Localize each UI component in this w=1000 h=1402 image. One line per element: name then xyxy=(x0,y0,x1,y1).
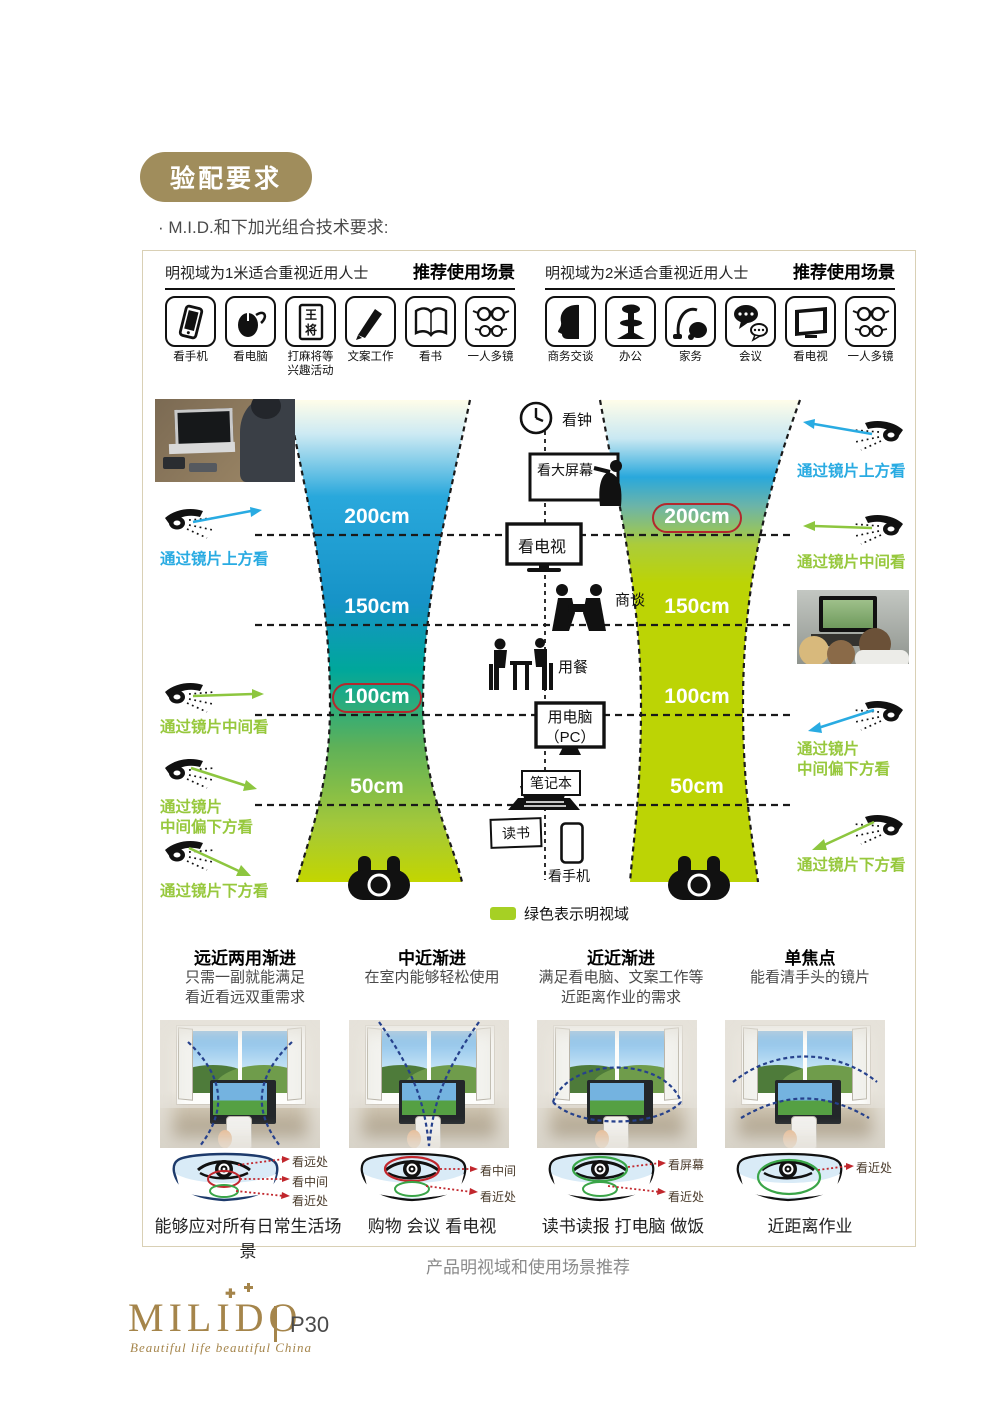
diagram-caption: 产品明视域和使用场景推荐 xyxy=(142,1253,914,1278)
catalog-page: 验配要求 · M.I.D.和下加光组合技术要求: 明视域为1米适合重视近用人士 … xyxy=(0,0,1000,1402)
scene-icons-left: 看手机 看电脑 王 将 打麻将等兴趣活动 文案工作 看书 xyxy=(165,296,517,379)
photo-laptop-user xyxy=(155,399,295,482)
scene-business-talk: 商务交谈 xyxy=(545,296,596,365)
legend-clear-zone: 绿色表示明视域 xyxy=(490,903,629,924)
lens-diagram-3 xyxy=(544,1148,674,1206)
scene-phone: 看手机 xyxy=(165,296,216,379)
window-scene-2 xyxy=(349,1020,509,1148)
lens4-title: 单焦点 xyxy=(715,944,905,969)
activity-talk-label: 商谈 xyxy=(615,589,645,610)
lens3-title: 近近渐进 xyxy=(526,944,716,969)
clear-zone-overlay-arc xyxy=(725,1020,885,1148)
eye-direction-icon xyxy=(800,698,905,743)
eye-direction-icon xyxy=(163,756,265,800)
glasses-icon xyxy=(851,302,891,342)
lens4-caption: 近距离作业 xyxy=(715,1212,905,1237)
distance-left-50: 50cm xyxy=(322,775,432,799)
distance-right-50: 50cm xyxy=(642,775,752,799)
lens2-label-near: 看近处 xyxy=(480,1188,516,1205)
lens3-desc: 满足看电脑、文案工作等近距离作业的需求 xyxy=(526,968,716,1009)
annotation-right-middle: 通过镜片中间看 xyxy=(797,553,906,573)
annotation-right-top: 通过镜片上方看 xyxy=(797,462,906,482)
scene-meeting: 会议 xyxy=(725,296,776,365)
lens2-caption: 购物 会议 看电视 xyxy=(337,1212,527,1237)
panel-right-scenes-title: 推荐使用场景 xyxy=(793,258,895,283)
lens2-desc: 在室内能够轻松使用 xyxy=(337,968,527,988)
activity-read-label: 读书 xyxy=(489,817,542,849)
scene-multi-glasses: 一人多镜 xyxy=(465,296,516,379)
scene-reading: 看书 xyxy=(405,296,456,379)
lens4-desc: 能看清手头的镜片 xyxy=(715,968,905,988)
eye-direction-icon xyxy=(163,838,265,882)
svg-text:将: 将 xyxy=(304,322,316,337)
scene-office: 办公 xyxy=(605,296,656,365)
annotation-left-middle: 通过镜片中间看 xyxy=(160,718,269,738)
brand-tagline: Beautiful life beautiful China xyxy=(130,1340,312,1356)
person-topview-icon xyxy=(348,856,410,902)
lens3-label-screen: 看屏幕 xyxy=(668,1156,704,1173)
annotation-left-midlow: 通过镜片中间偏下方看 xyxy=(160,798,253,838)
distance-right-200-circled: 200cm xyxy=(642,503,752,533)
phone-activity-icon xyxy=(560,822,584,864)
clock-icon xyxy=(518,400,554,436)
activity-dine-label: 用餐 xyxy=(558,656,588,677)
clear-zone-overlay-arch xyxy=(537,1020,697,1148)
pen-icon xyxy=(351,302,391,342)
lens2-title: 中近渐进 xyxy=(337,944,527,969)
lens1-label-far: 看远处 xyxy=(292,1153,328,1170)
eye-direction-icon xyxy=(163,506,265,548)
distance-left-200: 200cm xyxy=(322,505,432,529)
lens1-label-mid: 看中间 xyxy=(292,1173,328,1190)
clear-zone-overlay-hourglass xyxy=(160,1020,320,1148)
mouse-icon xyxy=(231,302,271,342)
handshake-icon xyxy=(548,583,610,631)
glasses-icon xyxy=(471,302,511,342)
phone-icon xyxy=(171,302,211,342)
lens3-caption: 读书读报 打电脑 做饭 xyxy=(523,1212,723,1237)
lens4-label-near: 看近处 xyxy=(856,1159,892,1176)
lens3-label-near: 看近处 xyxy=(668,1188,704,1205)
activity-tv-label: 看电视 xyxy=(518,533,566,557)
chat-icon xyxy=(731,302,771,342)
book-icon xyxy=(411,302,451,342)
eye-direction-icon xyxy=(800,418,905,463)
vacuum-icon xyxy=(671,302,711,342)
footer-divider xyxy=(274,1306,277,1342)
activity-bigscreen-label: 看大屏幕 xyxy=(537,460,593,480)
scene-mahjong: 王 将 打麻将等兴趣活动 xyxy=(285,296,336,379)
activity-laptop-label: 笔记本 xyxy=(521,770,581,796)
lens2-label-mid: 看中间 xyxy=(480,1162,516,1179)
profile-icon xyxy=(551,302,591,342)
eye-direction-icon xyxy=(800,512,905,554)
legend-swatch xyxy=(490,907,516,920)
eye-direction-icon xyxy=(800,812,905,857)
annotation-right-bottom: 通过镜片下方看 xyxy=(797,856,906,876)
lens-diagram-4 xyxy=(732,1148,862,1206)
panel-left-title: 明视域为1米适合重视近用人士 xyxy=(165,262,368,283)
distance-left-100-circled: 100cm xyxy=(322,683,432,713)
panel-right-title: 明视域为2米适合重视近用人士 xyxy=(545,262,748,283)
window-scene-4 xyxy=(725,1020,885,1148)
photo-family-tv xyxy=(797,590,909,664)
mahjong-icon: 王 将 xyxy=(291,302,331,342)
dining-icon xyxy=(487,634,555,692)
annotation-left-bottom: 通过镜片下方看 xyxy=(160,882,269,902)
page-number: P30 xyxy=(290,1312,329,1338)
panel-left-scenes-title: 推荐使用场景 xyxy=(413,258,515,283)
activity-phone-label: 看手机 xyxy=(548,866,590,886)
scene-tv: 看电视 xyxy=(785,296,836,365)
section-subtitle: · M.I.D.和下加光组合技术要求: xyxy=(158,213,388,238)
scene-housework: 家务 xyxy=(665,296,716,365)
lens1-desc: 只需一副就能满足看近看远双重需求 xyxy=(150,968,340,1009)
scene-multi-glasses-2: 一人多镜 xyxy=(845,296,896,365)
distance-right-150: 150cm xyxy=(642,595,752,619)
lens-diagram-2 xyxy=(356,1148,486,1206)
lens-diagram-1 xyxy=(168,1148,298,1206)
lens1-title: 远近两用渐进 xyxy=(150,944,340,969)
chair-icon xyxy=(611,302,651,342)
activity-pc-label: 用电脑（PC） xyxy=(540,708,600,747)
scene-computer: 看电脑 xyxy=(225,296,276,379)
logo-clover-icon xyxy=(216,1282,256,1304)
window-scene-1 xyxy=(160,1020,320,1148)
panel-header-left: 明视域为1米适合重视近用人士 推荐使用场景 xyxy=(165,258,515,290)
svg-text:王: 王 xyxy=(304,308,316,322)
clear-zone-overlay-vee xyxy=(349,1020,509,1148)
annotation-left-top: 通过镜片上方看 xyxy=(160,550,269,570)
eye-direction-icon xyxy=(163,680,265,720)
tv-icon xyxy=(791,302,831,342)
scene-icons-right: 商务交谈 办公 家务 会议 看电视 xyxy=(545,296,897,365)
scene-paperwork: 文案工作 xyxy=(345,296,396,379)
panel-header-right: 明视域为2米适合重视近用人士 推荐使用场景 xyxy=(545,258,895,290)
annotation-right-midlow: 通过镜片中间偏下方看 xyxy=(797,740,890,780)
distance-right-100: 100cm xyxy=(642,685,752,709)
activity-clock-label: 看钟 xyxy=(562,409,592,430)
window-scene-3 xyxy=(537,1020,697,1148)
section-badge: 验配要求 xyxy=(140,152,312,202)
person-topview-icon xyxy=(668,856,730,902)
lens1-label-near: 看近处 xyxy=(292,1192,328,1209)
distance-left-150: 150cm xyxy=(322,595,432,619)
